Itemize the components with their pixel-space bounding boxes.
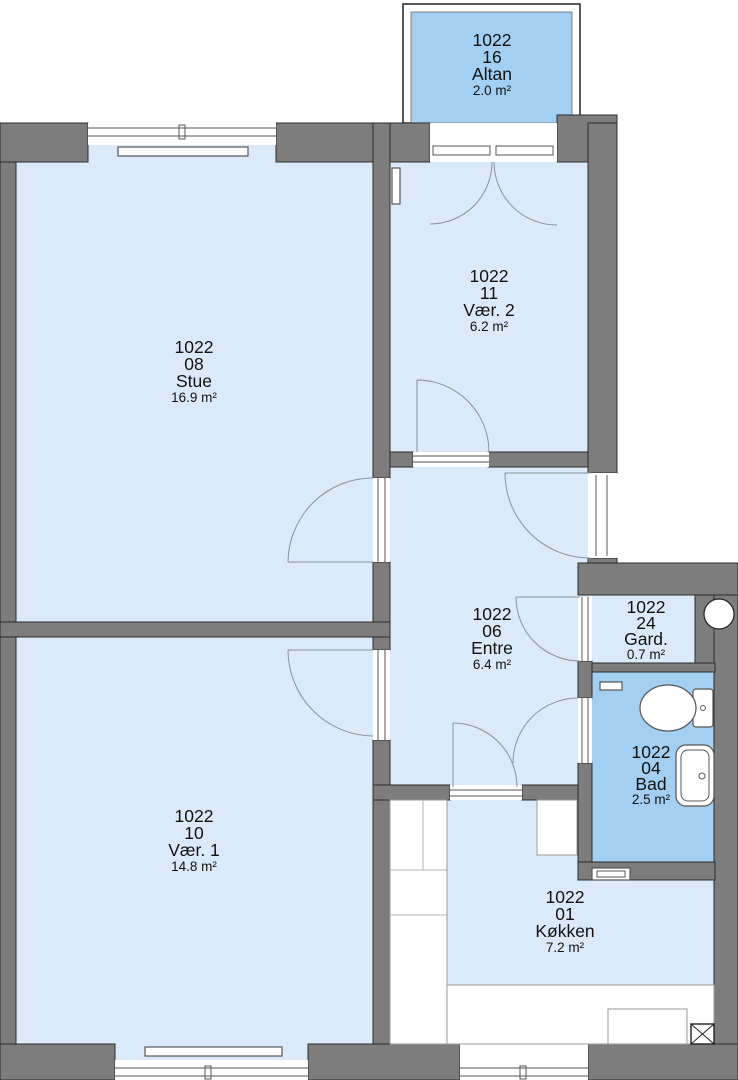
wall-segment [0,123,16,1080]
wall-segment [488,452,588,467]
wall-segment [0,622,390,637]
room-name: Entre [471,638,513,658]
bad-wall-vent [600,682,622,690]
room-area: 16.9 m² [171,390,217,405]
wall-segment [390,452,413,467]
duct-shaft [691,1024,714,1044]
room-name: Bad [635,774,666,794]
room-area: 6.4 m² [473,657,512,672]
wall-segment [276,123,430,162]
room-label-vaer2: 1022 11 Vær. 2 6.2 m² [463,266,515,334]
room-name: Altan [472,64,512,84]
radiator [392,168,400,204]
room-area: 14.8 m² [171,859,217,874]
wall-segment [0,1044,115,1080]
wall-segment [373,637,390,650]
wall-segment [588,123,617,473]
room-area: 7.2 m² [546,940,585,955]
room-name: Vær. 2 [463,300,515,320]
bad-vent-window [592,868,630,880]
room-area: 0.7 m² [627,647,666,662]
appliance [608,1009,687,1044]
wall-segment [588,1044,738,1080]
room-label-entre: 1022 06 Entre 6.4 m² [471,604,513,672]
wall-segment [714,595,738,1080]
room-area: 2.5 m² [632,792,671,807]
sink [676,745,714,806]
room-area: 6.2 m² [470,319,509,334]
wall-segment [578,663,715,672]
floorplan: 1022 16 Altan 2.0 m² 1022 11 Vær. 2 6.2 … [0,0,738,1080]
room-label-stue: 1022 08 Stue 16.9 m² [171,337,217,405]
room-label-altan: 1022 16 Altan 2.0 m² [472,30,512,98]
room-label-vaer1: 1022 10 Vær. 1 14.8 m² [168,806,220,874]
tall-cabinet [537,800,577,855]
room-label-gard: 1022 24 Gard. 0.7 m² [624,597,668,662]
radiator [118,147,248,156]
wall-segment [308,1044,460,1080]
room-name: Køkken [535,921,594,941]
room-name: Gard. [624,629,668,649]
wall-segment [578,661,592,698]
toilet [640,685,713,731]
koekken-window [460,1044,588,1080]
room-label-bad: 1022 04 Bad 2.5 m² [632,742,671,807]
wall-segment [373,785,450,800]
wall-segment [0,123,88,162]
room-area: 2.0 m² [473,83,512,98]
wall-segment [578,563,738,595]
wall-segment [373,123,390,478]
wall-segment [373,562,390,622]
room-name: Stue [176,371,212,391]
room-name: Vær. 1 [168,840,220,860]
radiator [145,1047,282,1056]
column [704,599,734,629]
